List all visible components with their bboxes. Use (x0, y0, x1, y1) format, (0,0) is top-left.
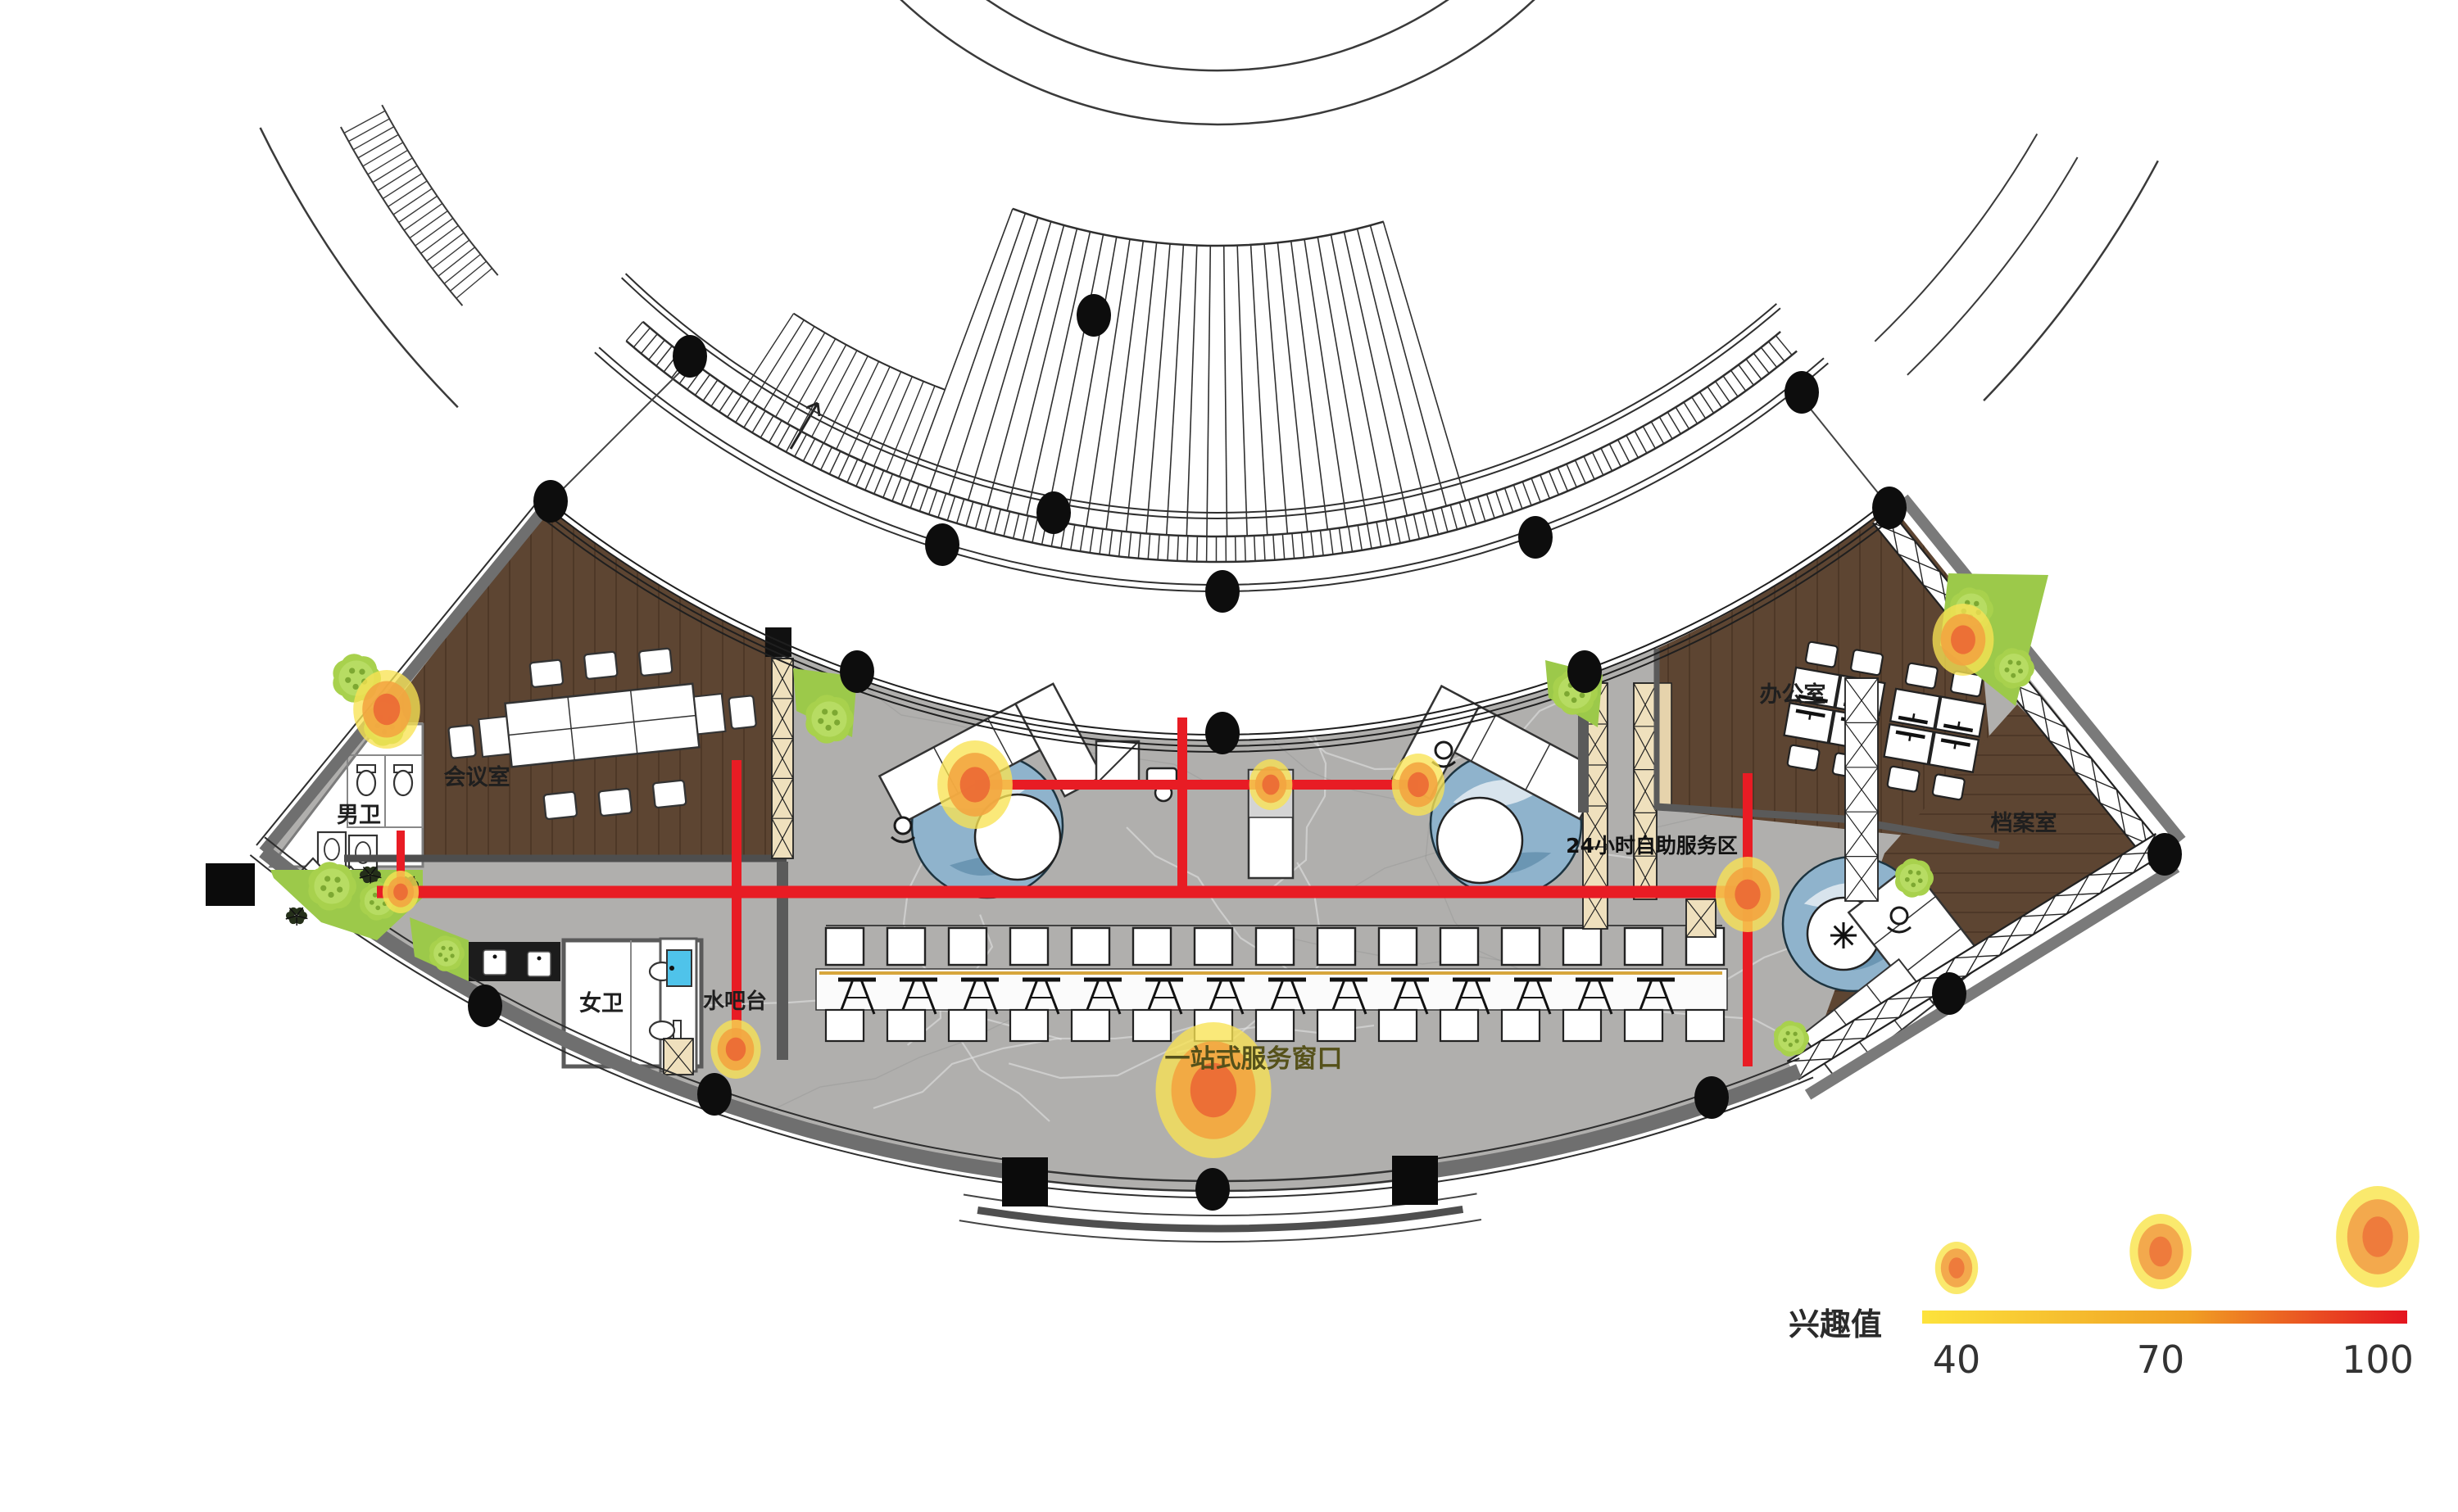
heat-core (374, 694, 401, 725)
band-tick (1567, 464, 1576, 487)
tree-canopy-top (433, 940, 460, 967)
band-tick (1692, 397, 1706, 419)
heat-spot-meeting-room-entry (353, 670, 420, 749)
column-dot (1077, 294, 1111, 337)
monitor-stand (1913, 713, 1914, 720)
band-tick (1716, 382, 1730, 403)
band-tick (1129, 532, 1131, 558)
corner-hatch-tick (399, 196, 438, 222)
corner-hatch-tick (444, 255, 480, 284)
band-tick (633, 328, 650, 347)
office-desk (1884, 724, 1934, 764)
room-label-office: 办公室 (1760, 681, 1826, 708)
band-tick (1292, 533, 1295, 559)
toilet-bowl (394, 771, 412, 795)
tree-texture (1794, 1039, 1798, 1043)
monitor-stand (1809, 713, 1810, 720)
tree-texture (375, 905, 380, 910)
fan-top-edge (1013, 209, 1384, 246)
office-chair (1932, 774, 1965, 800)
band-tick (947, 496, 955, 521)
band-tick (1513, 485, 1522, 509)
band-tick (1109, 530, 1113, 555)
legend-gradient-bar (1922, 1311, 2407, 1324)
heat-spot-office-corner-garden (1933, 604, 1994, 676)
legend-core (2149, 1237, 2172, 1267)
floor-plan-svg: 会议室男卫女卫水吧台办公室档案室24小时自助服务区一站式服务窗口兴趣值40701… (0, 0, 2458, 1512)
band-tick (910, 484, 919, 508)
substair-line (812, 351, 857, 437)
tree-texture (1918, 878, 1923, 883)
corner-hatch-tick (404, 203, 442, 230)
legend-circle-100 (2336, 1186, 2419, 1288)
queue-desk (826, 1010, 864, 1041)
band-tick (1187, 536, 1188, 561)
tree-canopy-top (1999, 654, 2029, 683)
tree-texture (448, 947, 452, 951)
band-tick (1032, 518, 1037, 542)
legend-core (2362, 1216, 2392, 1257)
band-tick (695, 374, 710, 395)
floor-plan-canvas: 会议室男卫女卫水吧台办公室档案室24小时自助服务区一站式服务窗口兴趣值40701… (0, 0, 2458, 1512)
room-label-meeting-room: 会议室 (444, 764, 510, 790)
table-end (694, 694, 726, 734)
tree-texture (1580, 692, 1585, 698)
band-tick (1549, 471, 1559, 495)
band-tick (736, 401, 750, 422)
corner-hatch-tick (378, 165, 417, 190)
band-tick (1236, 536, 1236, 562)
desk-floor-circle (1437, 798, 1522, 883)
column-dot (1205, 570, 1240, 613)
toilet-bowl (357, 771, 375, 795)
fan-step-line (1370, 225, 1446, 506)
band-tick (1699, 392, 1713, 413)
fan-step-line (1146, 244, 1170, 534)
queue-desk (887, 1010, 925, 1041)
band-tick (1609, 444, 1621, 467)
tree-texture (2018, 668, 2023, 673)
band-tick (856, 463, 866, 486)
column-dot (533, 480, 568, 523)
fan-step-line (1207, 246, 1210, 536)
corner-hatch-tick (348, 119, 389, 142)
band-tick (812, 443, 823, 466)
tree-texture (1793, 1032, 1797, 1036)
corner-hatch-tick (433, 240, 469, 269)
tree-canopy-top (1900, 864, 1929, 893)
heat-core (726, 1038, 746, 1062)
queue-desk (1625, 1010, 1662, 1041)
column-dot (1567, 650, 1602, 693)
column-dot (1932, 972, 1966, 1015)
office-desk (1930, 732, 1979, 772)
heat-core (960, 767, 991, 802)
band-tick (728, 396, 741, 417)
site-arc-outer-1 (927, 0, 1507, 70)
heat-spot-west-corridor-node (383, 871, 419, 913)
band-tick (1395, 518, 1400, 543)
band-tick (1158, 535, 1159, 560)
band-tick (1273, 535, 1275, 560)
queue-desk (1072, 1010, 1109, 1041)
band-tick (957, 499, 964, 523)
monitor-stand (1909, 735, 1910, 741)
service-window (1379, 928, 1417, 965)
site-arc-corner-left (261, 128, 458, 407)
cabinet-strip (1845, 678, 1878, 901)
band-tick (1707, 387, 1721, 408)
band-tick (1478, 497, 1485, 522)
band-tick (1626, 435, 1638, 457)
heat-core (1735, 880, 1760, 910)
band-tick (1584, 456, 1594, 479)
corner-hatch-tick (450, 261, 486, 291)
band-tick (1651, 422, 1663, 444)
service-window (1440, 928, 1478, 965)
grid-link-left (554, 362, 690, 498)
conference-chair (529, 659, 563, 687)
service-window (1133, 928, 1171, 965)
fan-step-line (1224, 246, 1227, 536)
column-dot (925, 523, 959, 566)
band-tick (938, 493, 946, 517)
vanity-sink (483, 950, 506, 975)
tree-texture (337, 886, 342, 892)
band-tick (1505, 488, 1513, 512)
tree-texture (345, 677, 351, 683)
column-dot (673, 335, 707, 378)
room-label-womens-restroom: 女卫 (579, 990, 624, 1016)
band-tick (626, 322, 642, 341)
column-dot (1518, 516, 1553, 559)
tree-texture (818, 718, 823, 724)
band-tick (838, 455, 849, 478)
heat-core (1951, 625, 1975, 654)
band-tick (919, 487, 927, 511)
band-tick (1197, 536, 1198, 562)
band-tick (1753, 353, 1769, 373)
fan-step-line (1186, 246, 1197, 536)
tick-band-edge (626, 341, 1797, 562)
band-tick (1676, 407, 1689, 428)
grid-link-right (1802, 398, 1886, 503)
corner-hatch-tick (415, 219, 453, 247)
fan-step-line (1127, 242, 1157, 532)
monitor-stand (1958, 722, 1959, 728)
band-tick (976, 505, 982, 529)
grand-stair-fan (741, 209, 1466, 536)
band-tick (1245, 536, 1245, 561)
legend-circle-40 (1935, 1242, 1978, 1294)
tree-texture (2011, 673, 2016, 678)
heat-spot-east-junction-node (1716, 857, 1780, 932)
tree-texture (2008, 659, 2013, 664)
conference-chair (543, 791, 577, 819)
tree-canopy-top (811, 701, 846, 736)
column-dot (1785, 371, 1819, 414)
band-tick (1635, 431, 1647, 453)
corner-hatch-tick (368, 150, 408, 174)
band-tick (1432, 509, 1439, 534)
faucet (537, 957, 542, 961)
band-tick (1684, 402, 1698, 423)
tree-texture (1783, 1038, 1787, 1042)
corner-arc-right (1907, 157, 2078, 375)
band-tick (1168, 535, 1169, 560)
fan-step-line (1264, 244, 1287, 534)
legend-value-40: 40 (1933, 1338, 1981, 1382)
band-tick (995, 509, 1001, 534)
legend-title: 兴趣值 (1789, 1306, 1882, 1342)
band-tick (1768, 342, 1785, 361)
band-tick (1301, 532, 1304, 558)
tree-texture (370, 900, 374, 905)
counter-band (816, 969, 1727, 1010)
column-dot (1195, 1168, 1230, 1211)
office-chair (1787, 745, 1820, 771)
corner-hatch-tick (353, 127, 394, 150)
band-tick (803, 438, 814, 461)
column-dot (697, 1073, 732, 1116)
corner-hatch-tick (410, 211, 447, 238)
band-tick (1413, 514, 1419, 539)
person-head (1891, 908, 1907, 924)
band-tick (821, 447, 832, 470)
tree-texture (1571, 697, 1577, 703)
heat-core (1408, 772, 1429, 797)
service-window (1195, 928, 1232, 965)
toilet-bowl (650, 1021, 674, 1039)
band-tick (1282, 534, 1284, 559)
band-tick (1775, 336, 1792, 355)
fan-step-line (930, 213, 1026, 487)
conference-chair (598, 788, 632, 816)
queue-desk (1010, 1010, 1048, 1041)
band-tick (1731, 370, 1746, 391)
band-tick (1263, 536, 1265, 561)
band-tick (641, 334, 657, 354)
column-dot (468, 985, 502, 1027)
column-dot (1694, 1076, 1729, 1119)
band-tick (1450, 505, 1457, 530)
heat-spot-left-reception-desk (937, 740, 1013, 829)
office-chair (1851, 650, 1884, 676)
band-tick (1576, 460, 1586, 483)
tree-texture (334, 877, 340, 883)
office-desk (1890, 689, 1939, 729)
fan-step-line (1251, 245, 1268, 535)
band-tick (1358, 525, 1362, 550)
band-tick (760, 415, 773, 437)
tree-texture (373, 893, 378, 898)
band-tick (1177, 536, 1178, 561)
cabinet-strip (1634, 683, 1657, 899)
tree-texture (2016, 660, 2021, 665)
heat-spot-one-stop-window-node (1155, 1022, 1271, 1158)
corner-hatch-tick (438, 247, 475, 276)
heat-spot-water-bar-node (710, 1020, 760, 1079)
band-tick (1339, 528, 1342, 554)
band-tick (703, 380, 718, 401)
corner-hatch-tick (344, 111, 385, 133)
fan-step-line (1007, 229, 1077, 511)
tree-texture (441, 946, 445, 950)
queue-desk (1563, 1010, 1601, 1041)
band-tick (1014, 514, 1019, 538)
corner-hatch-tick (373, 158, 412, 183)
fan-step-line (1167, 245, 1184, 535)
heat-core (393, 884, 408, 901)
band-tick (1320, 531, 1323, 556)
heat-core (1262, 775, 1279, 795)
fan-step-line (1383, 222, 1466, 500)
queue-desk (1256, 1010, 1294, 1041)
band-tick (1090, 527, 1093, 553)
band-tick (1496, 491, 1504, 515)
band-tick (1601, 448, 1612, 471)
tree-texture (1911, 882, 1916, 887)
band-tick (719, 391, 733, 412)
queue-desk (949, 1010, 986, 1041)
service-window (1010, 928, 1048, 965)
column-dot (1036, 491, 1071, 534)
corner-hatch-tick (427, 233, 464, 260)
tree-texture (834, 719, 840, 725)
tree-texture (1564, 691, 1570, 697)
tree-texture (1916, 871, 1921, 876)
band-tick (1254, 536, 1255, 561)
tree-texture (822, 708, 828, 714)
fan-step-line (1106, 241, 1143, 529)
faucet (493, 955, 497, 959)
band-tick (1023, 516, 1028, 541)
room-label-mens-restroom: 男卫 (337, 803, 381, 828)
legend-core (1948, 1257, 1964, 1279)
band-tick (883, 474, 893, 498)
corner-hatch-tick (383, 174, 422, 199)
person-head (895, 817, 911, 834)
band-tick (1404, 516, 1410, 541)
band-tick (1385, 520, 1390, 545)
band-tick (1558, 468, 1567, 491)
dark-shrub (286, 908, 308, 926)
west-pier (206, 863, 255, 906)
room-label-water-bar: 水吧台 (703, 989, 767, 1014)
tree-texture (328, 892, 333, 898)
tree-texture (1789, 1043, 1793, 1047)
fan-step-line (1291, 241, 1328, 529)
tree-texture (438, 953, 442, 957)
band-tick (1761, 347, 1776, 367)
fan-step-line (1027, 232, 1090, 515)
conference-chair (653, 780, 687, 808)
band-tick (1080, 527, 1084, 552)
entrance-pier (1392, 1156, 1438, 1205)
office-side-cabinet (1658, 683, 1671, 808)
band-tick (929, 491, 937, 514)
band-tick (1138, 533, 1141, 559)
fan-step-line (987, 225, 1063, 506)
substair-line (800, 345, 846, 431)
corner-hatch-tick (388, 181, 428, 206)
sink-basin (324, 839, 339, 860)
band-tick (711, 385, 725, 406)
band-tick (1148, 534, 1150, 559)
band-tick (752, 411, 765, 433)
band-tick (865, 467, 875, 491)
band-tick (1311, 532, 1313, 557)
service-window (949, 928, 986, 965)
queue-desk (1440, 1010, 1478, 1041)
water-bar-faucet (669, 966, 674, 971)
corner-hatch-tick (421, 225, 459, 253)
office-desk (1785, 703, 1834, 743)
band-tick (1487, 494, 1495, 518)
band-tick (1119, 532, 1122, 557)
promenade-arc (595, 352, 1828, 591)
tree-canopy-top (314, 868, 349, 903)
band-tick (656, 346, 672, 365)
queue-desk (1502, 1010, 1540, 1041)
conference-chair (639, 648, 673, 676)
corner-hatch-tick (363, 143, 403, 166)
queue-desk (1317, 1010, 1355, 1041)
band-tick (901, 481, 910, 505)
meeting-room-floor-floor (379, 508, 778, 858)
substair-edge (794, 314, 946, 390)
band-tick (1618, 440, 1630, 463)
band-tick (829, 451, 840, 474)
tree-texture (324, 876, 330, 881)
interest-legend: 兴趣值4070100 (1789, 1186, 2419, 1382)
band-tick (966, 502, 973, 527)
conference-chair (728, 695, 756, 729)
cabinet-strip (772, 659, 793, 858)
conference-chair (584, 651, 618, 679)
band-tick (778, 425, 790, 447)
column-dot (840, 650, 874, 693)
office-chair (1905, 663, 1938, 689)
corner-hatch-tick (358, 134, 398, 158)
one-stop-counter-row (816, 926, 1727, 1041)
band-tick (1423, 512, 1429, 536)
fan-step-line (968, 221, 1051, 500)
legend-value-70: 70 (2137, 1338, 2185, 1382)
band-tick (1522, 482, 1531, 505)
band-tick (1071, 525, 1075, 550)
entrance-pier (1002, 1157, 1048, 1206)
band-tick (649, 340, 665, 360)
site-arc-corner-right (1984, 161, 2158, 401)
service-window (1563, 928, 1601, 965)
service-window (1072, 928, 1109, 965)
band-tick (1349, 527, 1353, 552)
fan-step-line (1237, 246, 1247, 536)
band-tick (892, 478, 901, 501)
conference-chair (448, 725, 476, 758)
promenade-arc (599, 347, 1824, 585)
fan-step-line (1358, 229, 1427, 511)
cabinet-strip (1686, 899, 1716, 937)
tree-texture (444, 957, 448, 962)
band-tick (1376, 522, 1381, 546)
corner-band-edge (382, 105, 498, 275)
tree-texture (349, 668, 355, 673)
tree-texture (320, 885, 326, 891)
band-tick (1667, 412, 1680, 434)
legend-value-100: 100 (2342, 1338, 2414, 1382)
